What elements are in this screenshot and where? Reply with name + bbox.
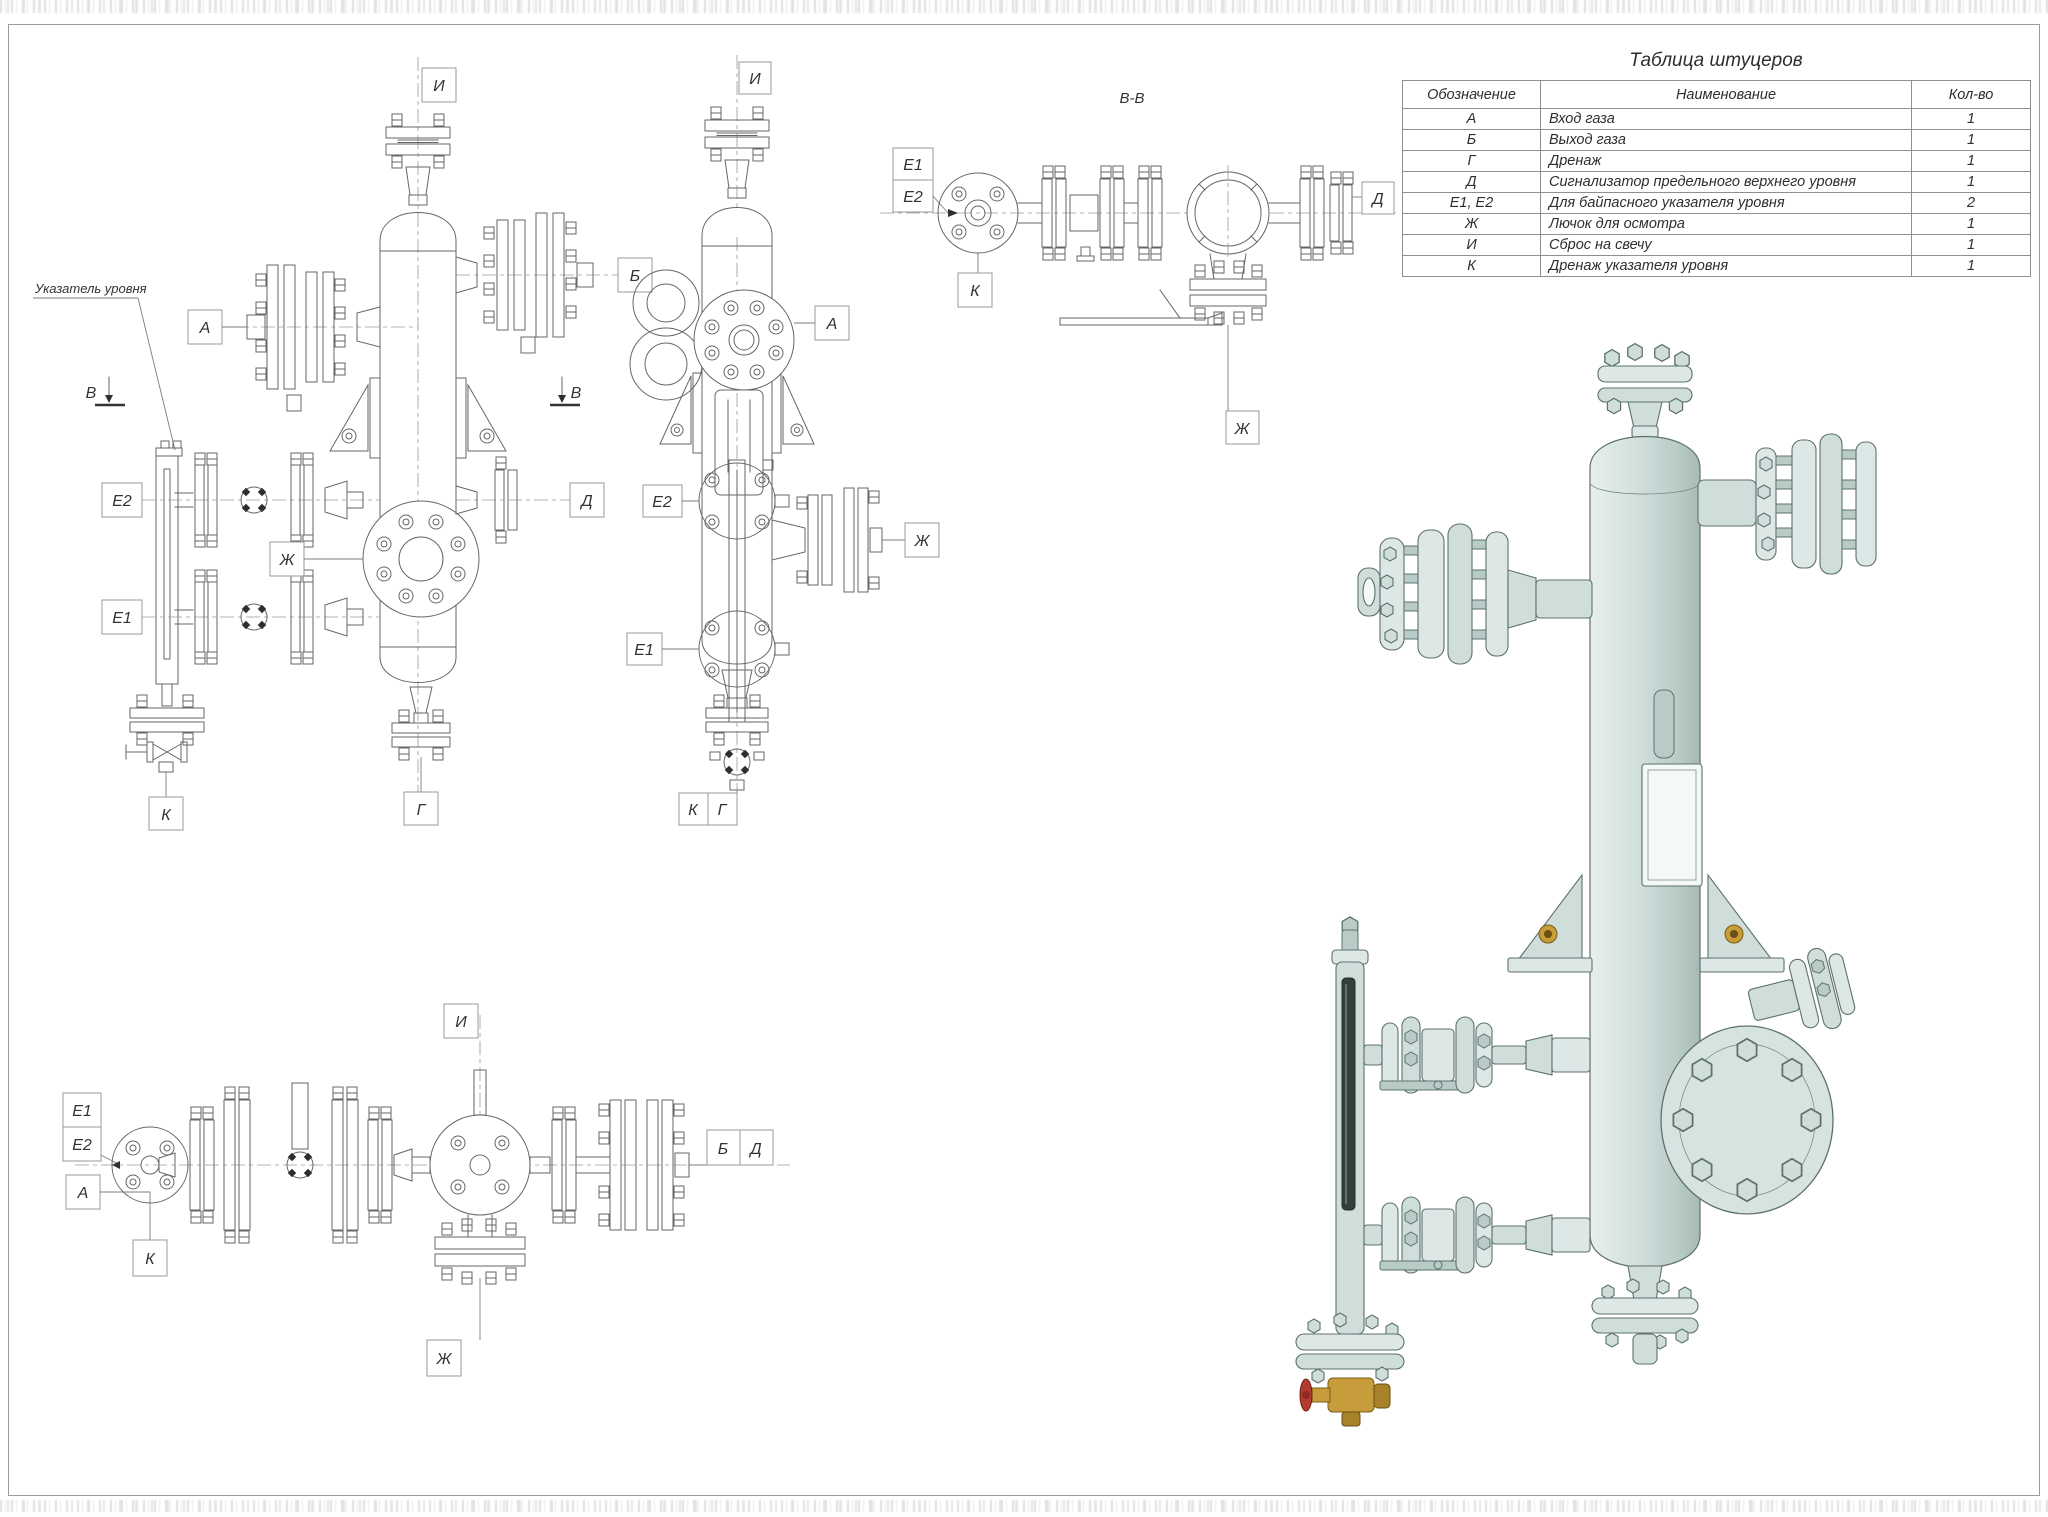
cell-name: Дренаж (1541, 151, 1912, 172)
section-vessel-circle (1187, 165, 1269, 261)
render-bottom-drain-flange (1592, 1266, 1698, 1364)
top-left-valve-train (190, 1083, 430, 1243)
nozzle-table-title: Таблица штуцеров (1402, 46, 2030, 80)
svg-text:Б: Б (718, 1141, 728, 1158)
cell-name: Для байпасного указателя уровня (1541, 193, 1912, 214)
svg-text:Е1: Е1 (112, 610, 132, 627)
svg-text:Ж: Ж (436, 1351, 453, 1368)
side-label-k-g: К Г (679, 793, 737, 825)
cell-designation: К (1403, 256, 1541, 277)
top-view-drawing: И Е1 Е2 А К (50, 995, 810, 1425)
table-header-designation: Обозначение (1403, 81, 1541, 109)
drawing-page: { "table": { "title": "Таблица штуцеров"… (0, 0, 2048, 1517)
side-label-zh: Ж (905, 523, 939, 557)
svg-text:К: К (161, 807, 172, 824)
table-header-qty: Кол-во (1912, 81, 2031, 109)
svg-text:Ж: Ж (914, 533, 931, 550)
svg-text:Е2: Е2 (112, 493, 132, 510)
cell-qty: 2 (1912, 193, 2031, 214)
svg-text:Д: Д (748, 1141, 761, 1158)
table-row: Ж Лючок для осмотра 1 (1403, 214, 2031, 235)
front-outlet-nozzle-b (456, 213, 618, 353)
svg-text:Ж: Ж (279, 552, 296, 569)
top-label-i: И (444, 1004, 478, 1038)
front-label-a: А (188, 310, 247, 344)
svg-text:Г: Г (718, 802, 728, 819)
cell-designation: Г (1403, 151, 1541, 172)
cell-designation: А (1403, 109, 1541, 130)
front-label-e1: Е1 (102, 600, 142, 634)
render-gauge-valve-upper (1364, 1017, 1590, 1093)
separator-3d-render (1230, 330, 1970, 1470)
cell-qty: 1 (1912, 172, 2031, 193)
table-row: К Дренаж указателя уровня 1 (1403, 256, 2031, 277)
section-title: В-В (1119, 90, 1144, 107)
svg-text:В: В (571, 385, 582, 402)
side-label-e1: Е1 (627, 633, 699, 665)
table-row: Г Дренаж 1 (1403, 151, 2031, 172)
cell-name: Сигнализатор предельного верхнего уровня (1541, 172, 1912, 193)
top-manhole-nozzle-zh (435, 1215, 525, 1340)
render-level-gauge-column (1332, 917, 1368, 1334)
svg-text:Е2: Е2 (72, 1137, 92, 1154)
svg-text:К: К (970, 283, 981, 300)
nozzle-table: Таблица штуцеров Обозначение Наименовани… (1402, 46, 2030, 277)
top-vessel-circle (430, 1115, 530, 1215)
cell-qty: 1 (1912, 256, 2031, 277)
top-noise-strip (0, 0, 2048, 13)
table-row: Б Выход газа 1 (1403, 130, 2031, 151)
front-signal-nozzle-d (456, 457, 570, 543)
front-label-e2: Е2 (102, 483, 142, 517)
front-label-k: К (149, 797, 183, 830)
render-gauge-valve-lower (1364, 1197, 1590, 1273)
svg-text:В: В (86, 385, 97, 402)
front-inlet-nozzle-a (235, 265, 418, 411)
svg-text:Г: Г (417, 802, 427, 819)
cell-designation: Е1, Е2 (1403, 193, 1541, 214)
side-inlet-flange-circle-a (694, 290, 794, 390)
cell-qty: 1 (1912, 235, 2031, 256)
cell-name: Дренаж указателя уровня (1541, 256, 1912, 277)
bottom-noise-strip (0, 1500, 2048, 1512)
table-row: А Вход газа 1 (1403, 109, 2031, 130)
table-header-row: Обозначение Наименование Кол-во (1403, 81, 2031, 109)
svg-text:И: И (433, 78, 445, 95)
section-mark-b-right: В (550, 377, 582, 405)
cell-qty: 1 (1912, 109, 2031, 130)
svg-text:Д: Д (579, 493, 592, 510)
front-manhole-zh (363, 501, 479, 617)
section-label-e1-e2: Е1 Е2 (893, 148, 958, 217)
front-label-zh: Ж (270, 542, 363, 576)
svg-text:Д: Д (1370, 191, 1383, 208)
top-label-k: К (133, 1240, 167, 1276)
svg-text:А: А (826, 316, 838, 333)
front-label-d: Д (570, 483, 604, 517)
svg-text:Указатель уровня: Указатель уровня (34, 281, 147, 296)
cell-designation: И (1403, 235, 1541, 256)
render-gas-outlet-flange (1698, 434, 1876, 574)
svg-text:К: К (688, 802, 699, 819)
section-label-d: Д (1362, 182, 1394, 214)
table-row: И Сброс на свечу 1 (1403, 235, 2031, 256)
render-manhole-blind-flange (1661, 1026, 1833, 1214)
cell-qty: 1 (1912, 130, 2031, 151)
svg-text:И: И (749, 71, 761, 88)
front-view-drawing: И А (25, 45, 665, 855)
side-manhole-nozzle-zh (772, 488, 905, 592)
cell-designation: Д (1403, 172, 1541, 193)
cell-name: Вход газа (1541, 109, 1912, 130)
svg-text:Е1: Е1 (72, 1103, 92, 1120)
level-gauge-annotation: Указатель уровня (33, 281, 175, 450)
svg-text:Е2: Е2 (652, 494, 672, 511)
top-label-b-d: Б Д (707, 1130, 773, 1165)
table-row: Д Сигнализатор предельного верхнего уров… (1403, 172, 2031, 193)
top-label-a: А (66, 1175, 150, 1240)
svg-text:И: И (455, 1014, 467, 1031)
cell-qty: 1 (1912, 214, 2031, 235)
cell-designation: Б (1403, 130, 1541, 151)
svg-text:А: А (199, 320, 211, 337)
side-gauge-flange-e1 (699, 611, 789, 687)
cell-qty: 1 (1912, 151, 2031, 172)
section-mark-b-left: В (86, 377, 125, 405)
svg-text:К: К (145, 1251, 156, 1268)
front-label-g: Г (404, 792, 438, 825)
section-gauge-flange-circle (938, 173, 1018, 273)
side-label-e2: Е2 (643, 485, 699, 517)
table-header-name: Наименование (1541, 81, 1912, 109)
table-row: Е1, Е2 Для байпасного указателя уровня 2 (1403, 193, 2031, 214)
svg-text:Е1: Е1 (634, 642, 654, 659)
render-gas-inlet-flange (1358, 524, 1592, 664)
section-left-valve-train (1018, 166, 1222, 325)
svg-text:Е1: Е1 (903, 157, 923, 174)
front-drain-nozzle-g (392, 687, 450, 792)
cell-designation: Ж (1403, 214, 1541, 235)
svg-text:А: А (77, 1185, 89, 1202)
cell-name: Сброс на свечу (1541, 235, 1912, 256)
side-label-a: А (794, 306, 849, 340)
section-label-k: К (958, 273, 992, 307)
svg-text:Е2: Е2 (903, 189, 923, 206)
top-label-zh: Ж (427, 1340, 461, 1376)
cell-name: Лючок для осмотра (1541, 214, 1912, 235)
front-label-i: И (422, 68, 456, 102)
side-gauge-flange-e2 (699, 463, 789, 539)
cell-name: Выход газа (1541, 130, 1912, 151)
side-label-i: И (739, 62, 771, 94)
top-label-e1-e2: Е1 Е2 (63, 1093, 120, 1169)
